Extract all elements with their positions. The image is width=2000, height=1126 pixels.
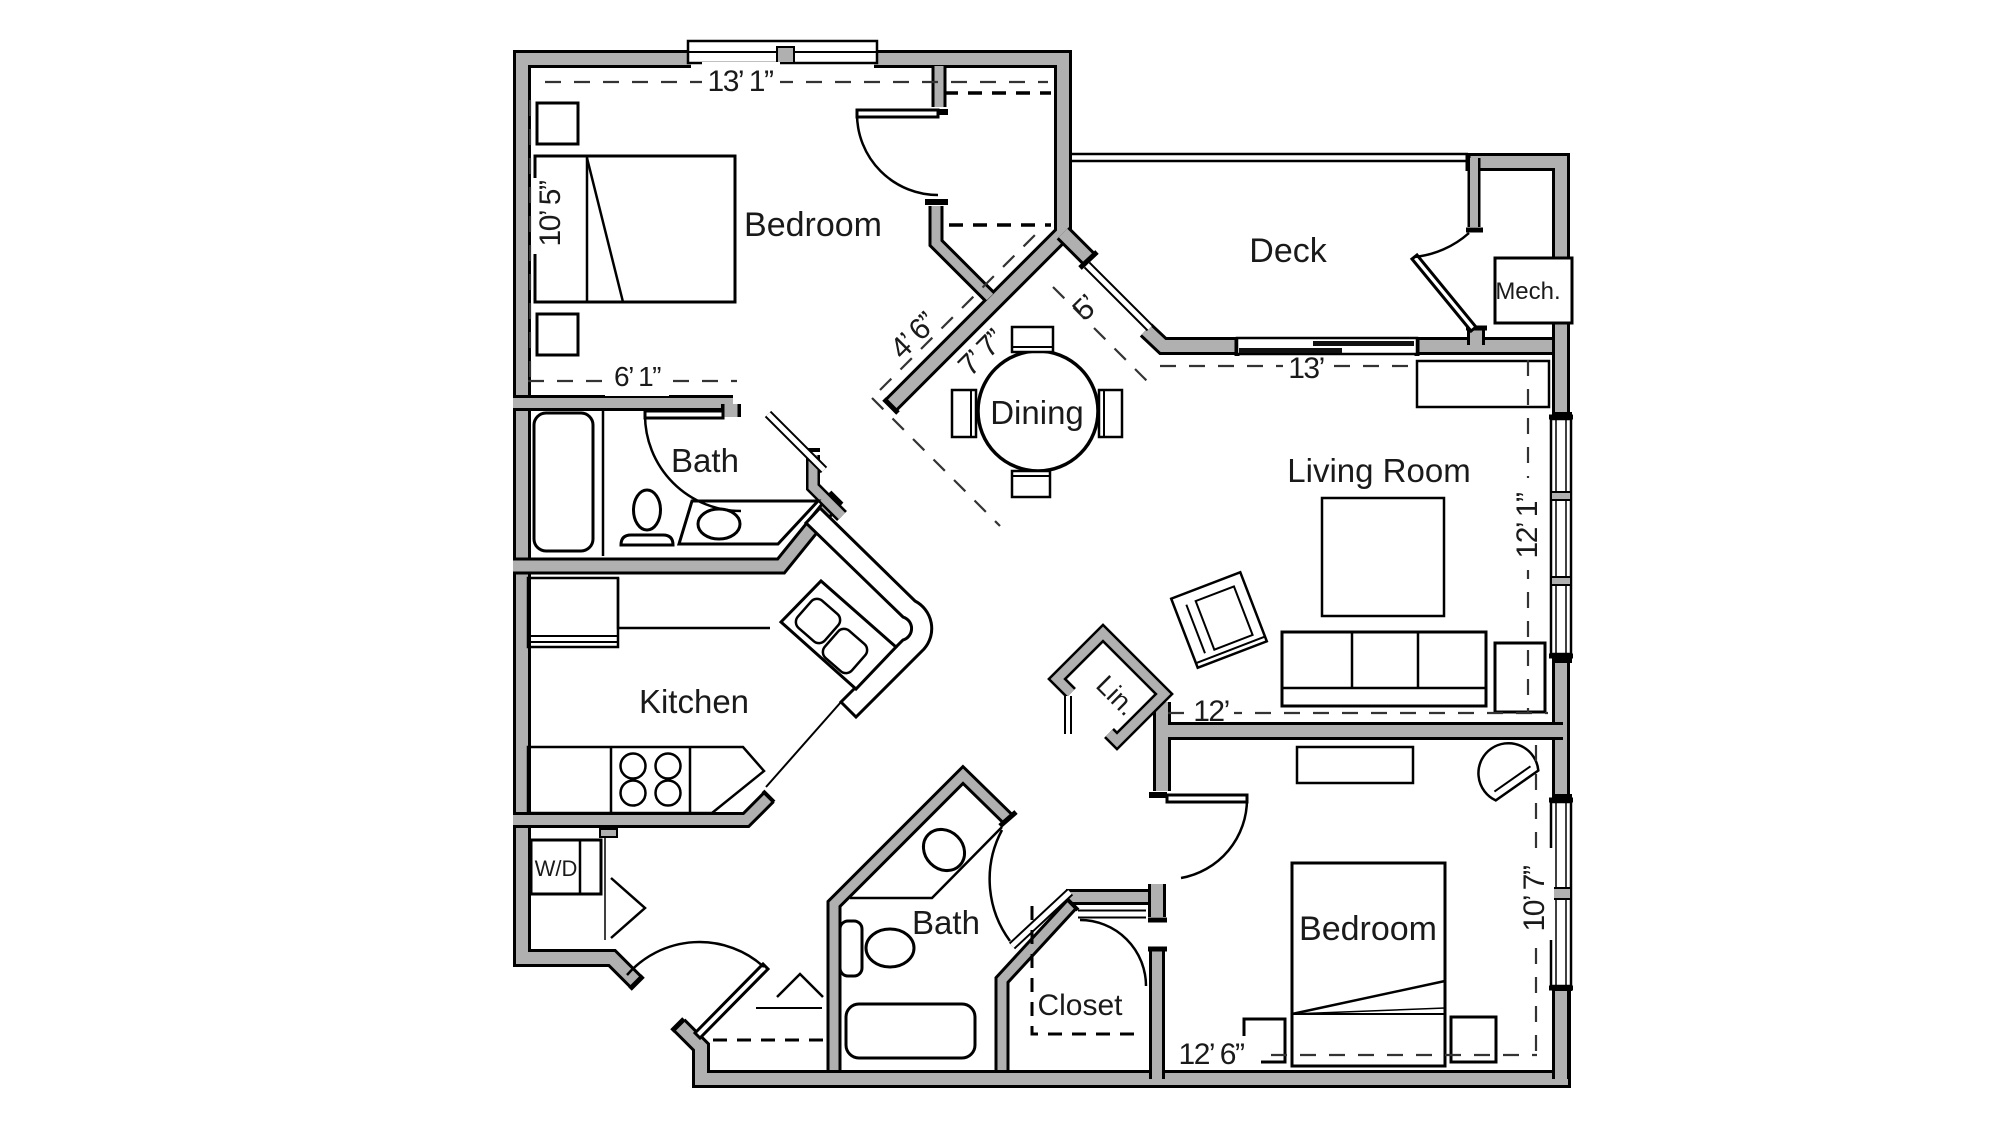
svg-text:12’ 1”: 12’ 1”	[1511, 493, 1544, 558]
svg-text:10’ 7”: 10’ 7”	[1518, 866, 1551, 931]
svg-text:Bath: Bath	[671, 442, 739, 479]
svg-text:Deck: Deck	[1249, 232, 1327, 270]
svg-text:Dining: Dining	[990, 394, 1084, 431]
svg-text:Bedroom: Bedroom	[744, 206, 882, 244]
svg-text:Kitchen: Kitchen	[639, 683, 749, 720]
svg-text:Mech.: Mech.	[1495, 278, 1560, 305]
svg-text:Closet: Closet	[1037, 989, 1123, 1022]
svg-text:Bedroom: Bedroom	[1299, 910, 1437, 948]
svg-text:10’ 5”: 10’ 5”	[534, 181, 567, 246]
svg-text:W/D: W/D	[535, 856, 578, 881]
svg-text:13’ 1”: 13’ 1”	[708, 65, 773, 98]
svg-text:12’ 6”: 12’ 6”	[1179, 1038, 1244, 1071]
svg-text:Living Room: Living Room	[1287, 452, 1470, 489]
svg-text:12’: 12’	[1193, 695, 1229, 728]
svg-text:Bath: Bath	[912, 904, 980, 941]
svg-text:6’ 1”: 6’ 1”	[614, 361, 661, 392]
svg-text:13’: 13’	[1288, 352, 1324, 385]
